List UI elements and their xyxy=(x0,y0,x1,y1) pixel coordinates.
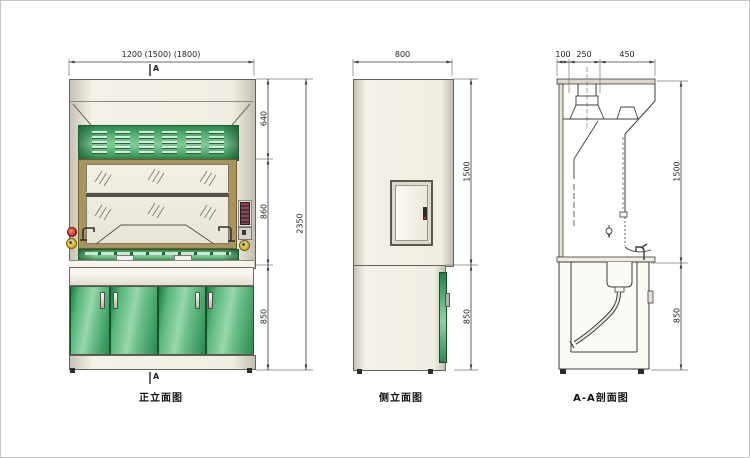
drawing-canvas: 1200 (1500) (1800) A A 640 860 850 2350 … xyxy=(0,0,750,458)
front-total-height-dim: 2350 xyxy=(296,204,305,244)
side-feet xyxy=(357,369,433,374)
side-upper-height-dim: 1500 xyxy=(463,152,472,192)
front-sash-height-dim: 860 xyxy=(260,192,269,232)
side-cabinet-height-dim: 850 xyxy=(463,297,472,337)
interior-baffle-outline xyxy=(96,225,214,244)
front-width-dim: 1200 (1500) (1800) xyxy=(96,50,226,59)
section-front-dim: 450 xyxy=(613,50,641,59)
section-cabinet-height-dim: 850 xyxy=(673,296,682,336)
section-duct-dim: 250 xyxy=(570,50,598,59)
section-upper-height-dim: 1500 xyxy=(673,152,682,192)
front-hood-height-dim: 640 xyxy=(260,99,269,139)
front-hood-flare xyxy=(73,104,250,125)
section-marker-bottom: A xyxy=(153,373,159,381)
faucet-icon xyxy=(80,228,94,240)
faucet-icon xyxy=(219,227,235,241)
side-depth-dim: 800 xyxy=(353,50,452,59)
glass-hatch-marks xyxy=(95,169,216,220)
section-feet xyxy=(560,369,644,374)
front-cabinet-height-dim: 850 xyxy=(260,297,269,337)
front-feet xyxy=(70,368,252,373)
section-view-drawing xyxy=(557,67,655,374)
light-bulb-icon xyxy=(606,225,612,237)
section-view-label: A-A剖面图 xyxy=(546,389,656,404)
side-view-label: 侧立面图 xyxy=(351,389,451,404)
section-marker-top: A xyxy=(153,65,159,73)
front-view-label: 正立面图 xyxy=(111,389,211,404)
